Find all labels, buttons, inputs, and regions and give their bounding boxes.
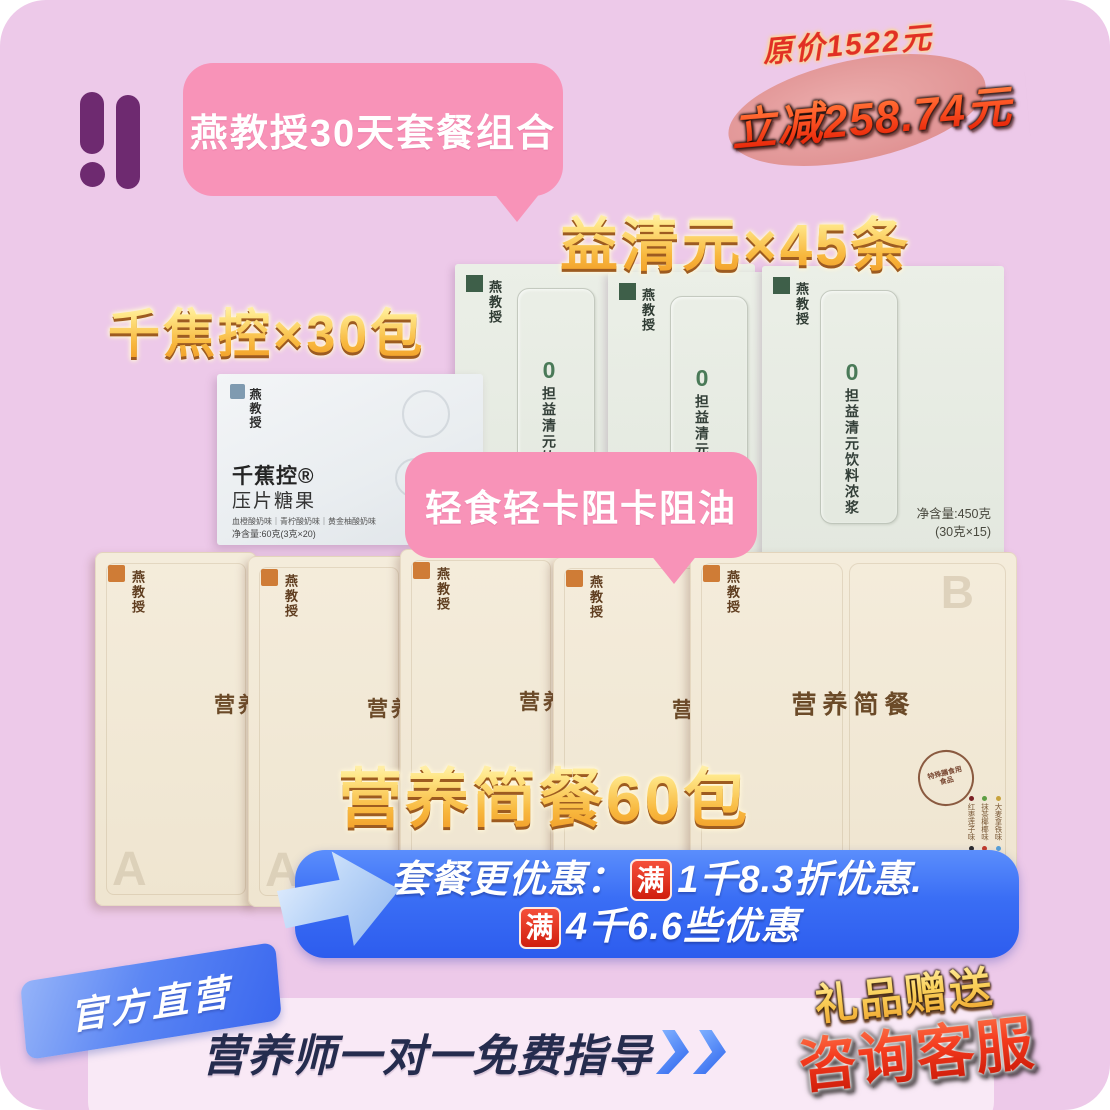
brand-square-icon: [230, 384, 245, 399]
brand-vertical: 燕教授: [723, 570, 742, 615]
brand-square-icon: [619, 283, 636, 300]
green-product-name: 担益清元饮料浓浆: [842, 388, 862, 516]
man-badge-icon: 满: [630, 859, 672, 901]
green-package-3: 燕教授 0 担益清元饮料浓浆 净含量:450克 (30克×15): [762, 266, 1004, 555]
promo-image: 原价1522元 立减258.74元 燕教授30天套餐组合 燕教授 0 担益清元饮…: [0, 0, 1110, 1110]
cream-product-name: 营养简餐: [691, 685, 1016, 721]
brand-vertical: 燕教授: [433, 567, 452, 612]
man-badge-icon: 满: [519, 907, 561, 949]
headline-meal: 营养简餐60包: [338, 748, 750, 840]
feature-bubble: 轻食轻卡阻卡阻油: [405, 452, 757, 558]
brand-square-icon: [566, 570, 583, 587]
white-box-flavors: 血橙酸奶味｜青柠酸奶味｜黄金柚酸奶味: [232, 516, 376, 527]
flavor-dot: [982, 796, 987, 801]
coach-line: 营养师一对一免费指导: [202, 1020, 726, 1084]
promo-banner: 套餐更优惠： 满 1千8.3折优惠. 满 4千6.6些优惠: [295, 850, 1019, 958]
brand-square-icon: [466, 275, 483, 292]
promo-line-1: 套餐更优惠： 满 1千8.3折优惠.: [391, 857, 923, 905]
zero-label: 0: [696, 367, 709, 390]
brand-square-icon: [108, 565, 125, 582]
brand-vertical: 燕教授: [128, 570, 147, 615]
feature-text: 轻食轻卡阻卡阻油: [425, 478, 737, 532]
promo-line-2: 满 4千6.6些优惠: [514, 904, 800, 952]
brand-square-icon: [261, 569, 278, 586]
zero-label: 0: [543, 359, 556, 382]
brand-vertical: 燕教授: [586, 575, 605, 620]
flavor-dot: [969, 796, 974, 801]
brand-square-icon: [413, 562, 430, 579]
emboss-circle: [402, 390, 450, 438]
bubble-tail: [650, 554, 698, 584]
flavor-dot: [996, 796, 1001, 801]
net-weight: 净含量:450克 (30克×15): [917, 506, 991, 541]
letter-emboss: A: [112, 842, 147, 897]
chevron-right-icon: [693, 1030, 729, 1074]
combo-title-bubble: 燕教授30天套餐组合: [183, 63, 563, 196]
white-box-type: 压片糖果: [232, 486, 316, 513]
cream-package-1: 燕教授 A 营养: [95, 552, 257, 906]
brand-vertical: 燕教授: [247, 388, 264, 430]
headline-yiqingyuan: 益清元×45条: [560, 198, 911, 282]
brand-vertical: 燕教授: [281, 574, 300, 619]
combo-title: 燕教授30天套餐组合: [190, 102, 556, 157]
coach-text: 营养师一对一免费指导: [202, 1020, 652, 1084]
zero-label: 0: [846, 361, 859, 384]
letter-emboss: B: [941, 565, 974, 619]
brand-square-icon: [703, 565, 720, 582]
brand-logo-icon: [80, 90, 144, 192]
flavor-dot: [996, 846, 1001, 851]
brand-vertical: 燕教授: [792, 282, 811, 327]
chevron-right-icon: [656, 1030, 692, 1074]
brand-vertical: 燕教授: [485, 280, 504, 325]
bubble-tail: [493, 192, 541, 222]
brand-vertical: 燕教授: [638, 288, 657, 333]
headline-qianjiaokong: 千焦控×30包: [108, 292, 425, 367]
white-box-net-weight: 净含量:60克(3克×20): [232, 527, 316, 540]
